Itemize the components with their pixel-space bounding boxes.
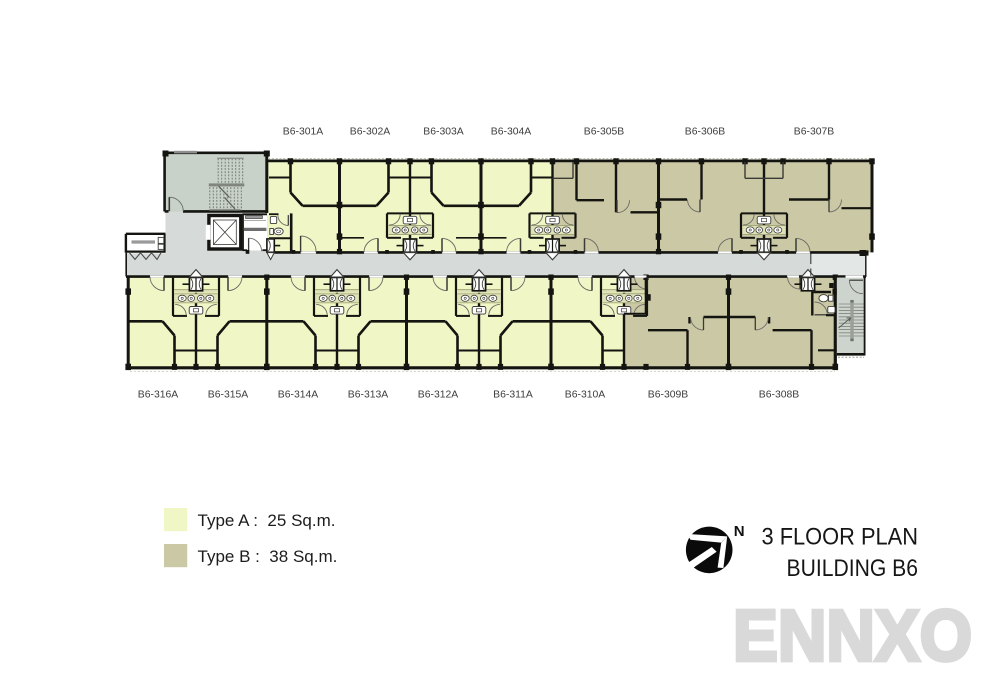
svg-text:N: N — [734, 523, 745, 540]
svg-text:B6-311A: B6-311A — [493, 390, 533, 401]
svg-text:Type A : 25 Sq.m.: Type A : 25 Sq.m. — [198, 511, 336, 530]
svg-text:B6-310A: B6-310A — [565, 390, 606, 401]
svg-text:B6-306B: B6-306B — [685, 127, 726, 138]
svg-text:BUILDING B6: BUILDING B6 — [787, 555, 919, 582]
svg-text:Type B : 38 Sq.m.: Type B : 38 Sq.m. — [198, 547, 338, 566]
svg-text:B6-301A: B6-301A — [283, 127, 324, 138]
svg-text:3 FLOOR PLAN: 3 FLOOR PLAN — [762, 524, 919, 551]
svg-text:B6-312A: B6-312A — [418, 390, 459, 401]
svg-text:B6-305B: B6-305B — [584, 127, 625, 138]
svg-text:B6-302A: B6-302A — [350, 127, 391, 138]
svg-text:B6-313A: B6-313A — [348, 390, 389, 401]
svg-text:ENNXO: ENNXO — [733, 597, 972, 677]
svg-text:B6-315A: B6-315A — [208, 390, 249, 401]
svg-text:B6-307B: B6-307B — [794, 127, 835, 138]
svg-text:B6-303A: B6-303A — [423, 127, 464, 138]
svg-text:B6-316A: B6-316A — [138, 390, 179, 401]
svg-text:B6-314A: B6-314A — [278, 390, 319, 401]
svg-text:B6-309B: B6-309B — [648, 390, 689, 401]
svg-text:B6-304A: B6-304A — [491, 127, 532, 138]
svg-text:B6-308B: B6-308B — [759, 390, 800, 401]
